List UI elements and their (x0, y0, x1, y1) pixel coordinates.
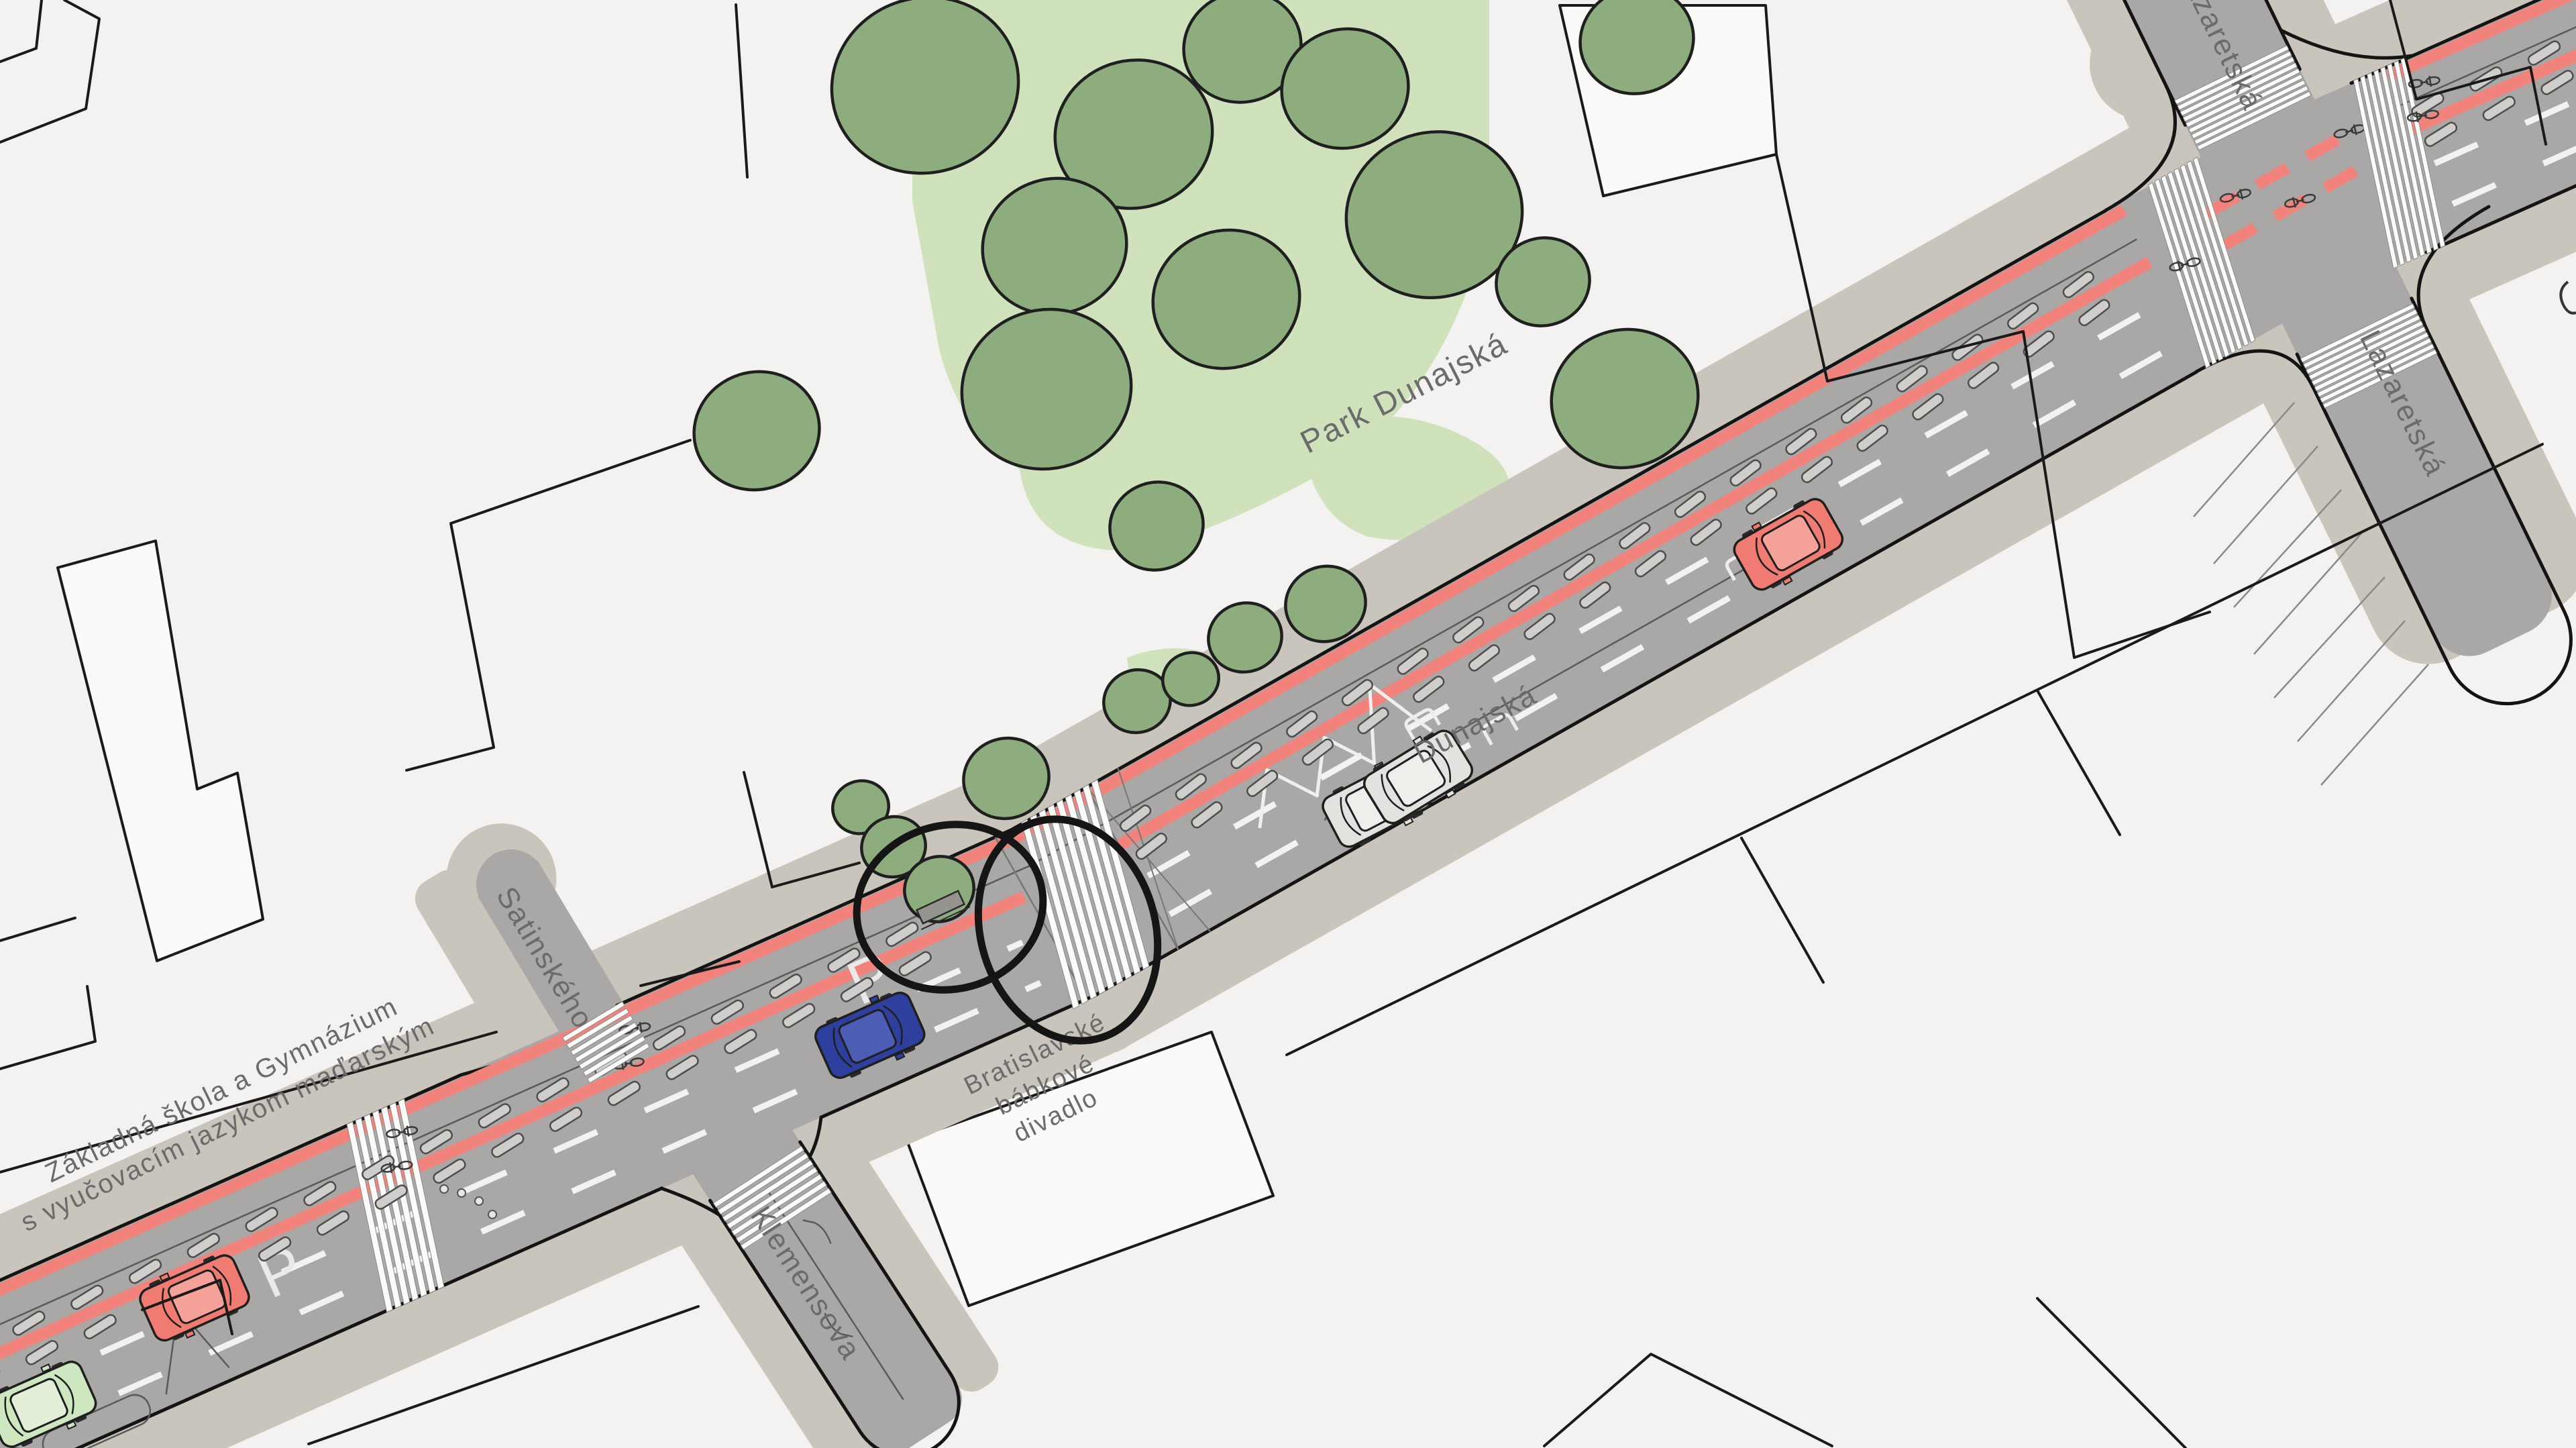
map-canvas: P P Satinského Kleme (0, 0, 2576, 1448)
map: P P Satinského Kleme (0, 0, 2576, 1448)
